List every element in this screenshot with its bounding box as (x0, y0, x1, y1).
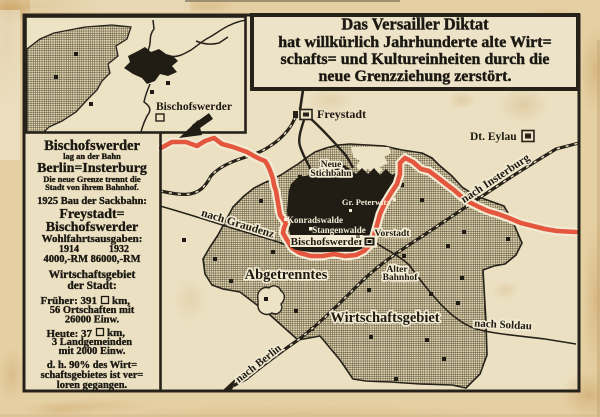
svg-text:Dt. Eylau: Dt. Eylau (470, 131, 517, 143)
svg-text:4000,-RM 86000,-RM: 4000,-RM 86000,-RM (43, 254, 140, 265)
svg-text:schafts= und Kultureinheiten d: schafts= und Kultureinheiten durch die (280, 51, 549, 68)
svg-text:Stadt von ihrem Bahnhof.: Stadt von ihrem Bahnhof. (45, 182, 139, 192)
svg-text:Gr. Peterwitz: Gr. Peterwitz (342, 197, 391, 207)
svg-text:neue Grenzziehung zerstört.: neue Grenzziehung zerstört. (319, 68, 512, 85)
svg-text:Freystadt: Freystadt (317, 107, 366, 121)
svg-text:loren gegangen.: loren gegangen. (57, 380, 128, 391)
svg-text:Bischofswerder: Bischofswerder (156, 101, 232, 113)
svg-text:n: n (356, 232, 360, 240)
svg-text:1925 Bau der Sackbahn:: 1925 Bau der Sackbahn: (37, 196, 147, 207)
svg-text:Abgetrenntes: Abgetrenntes (245, 267, 328, 283)
svg-text:Bischofswerder: Bischofswerder (291, 236, 364, 248)
svg-text:mit 2000 Einw.: mit 2000 Einw. (59, 346, 126, 357)
svg-text:lag an der Bahn: lag an der Bahn (63, 151, 121, 161)
svg-text:Stichbahn: Stichbahn (310, 169, 352, 179)
svg-text:Vorstadt: Vorstadt (374, 229, 410, 239)
svg-text:26000 Einw.: 26000 Einw. (65, 315, 120, 326)
svg-text:Das Versailler Diktat: Das Versailler Diktat (341, 15, 489, 34)
svg-text:Konradswalde: Konradswalde (287, 215, 343, 225)
svg-text:Wirtschaftsgebiet: Wirtschaftsgebiet (330, 310, 439, 326)
svg-text:Bahnhof: Bahnhof (383, 273, 419, 283)
svg-text:hat willkürlich Jahrhunderte a: hat willkürlich Jahrhunderte alte Wirt= (278, 34, 551, 51)
svg-text:der Stadt:: der Stadt: (67, 280, 116, 292)
